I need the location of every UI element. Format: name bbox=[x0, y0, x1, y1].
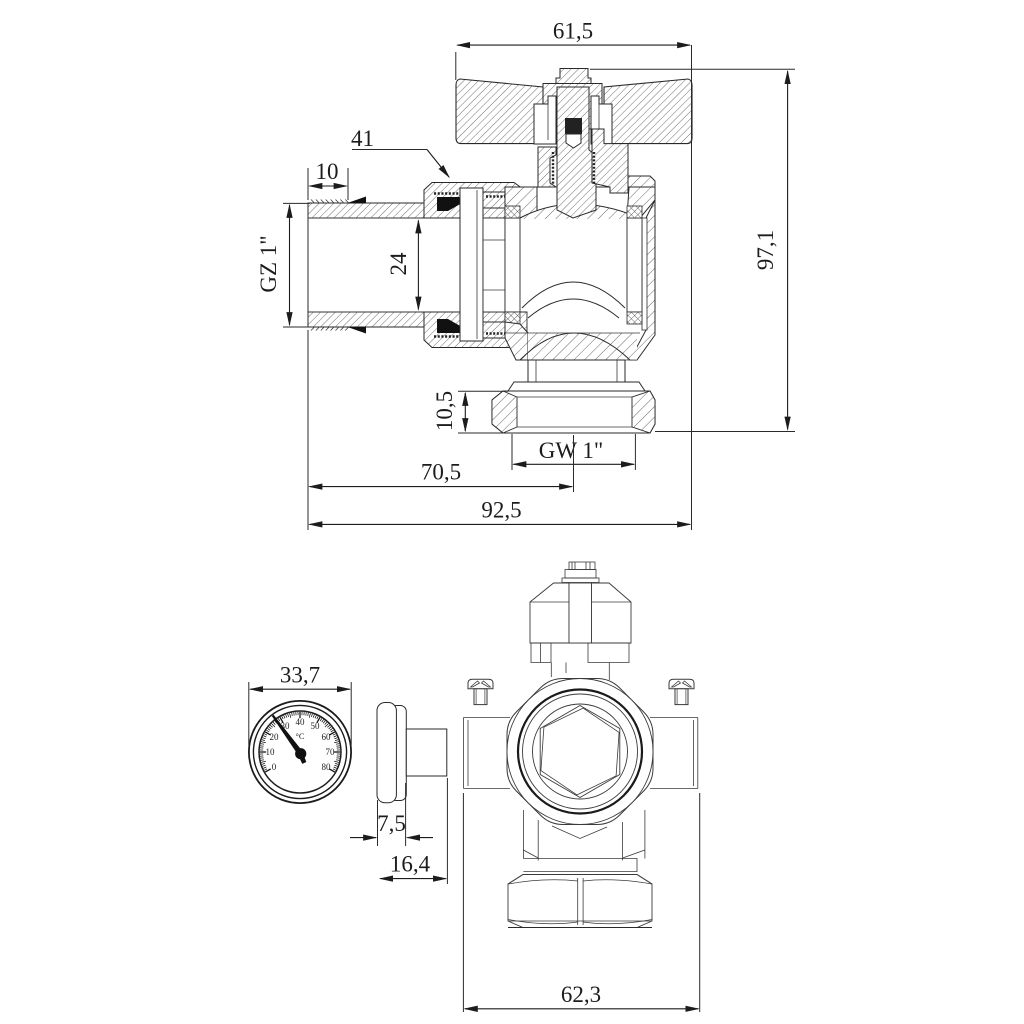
svg-text:24: 24 bbox=[386, 252, 411, 276]
svg-text:41: 41 bbox=[351, 126, 374, 151]
svg-text:33,7: 33,7 bbox=[280, 663, 320, 688]
svg-text:°C: °C bbox=[295, 731, 304, 741]
svg-text:20: 20 bbox=[270, 732, 280, 742]
svg-text:60: 60 bbox=[322, 732, 332, 742]
svg-text:92,5: 92,5 bbox=[481, 498, 521, 523]
svg-text:0: 0 bbox=[272, 762, 277, 772]
svg-text:GW 1": GW 1" bbox=[539, 438, 604, 463]
svg-text:10: 10 bbox=[316, 159, 339, 184]
svg-text:10,5: 10,5 bbox=[432, 391, 457, 431]
svg-text:62,3: 62,3 bbox=[561, 982, 601, 1007]
svg-text:GZ 1": GZ 1" bbox=[256, 235, 281, 292]
svg-text:61,5: 61,5 bbox=[553, 19, 593, 44]
svg-text:97,1: 97,1 bbox=[753, 230, 778, 270]
svg-text:70: 70 bbox=[326, 747, 336, 757]
svg-text:10: 10 bbox=[266, 747, 276, 757]
svg-text:50: 50 bbox=[311, 721, 321, 731]
svg-text:80: 80 bbox=[322, 762, 332, 772]
svg-text:70,5: 70,5 bbox=[421, 460, 461, 485]
svg-text:7,5: 7,5 bbox=[377, 811, 406, 836]
svg-text:16,4: 16,4 bbox=[390, 852, 431, 877]
svg-text:40: 40 bbox=[296, 717, 306, 727]
